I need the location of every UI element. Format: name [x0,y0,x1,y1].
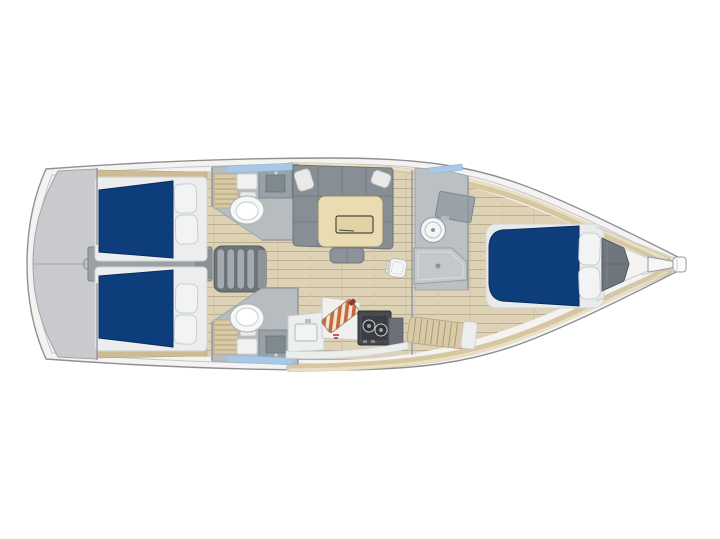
boat-floorplan-figure: Sailboat interior layout plan, top view:… [0,0,720,539]
salon-table [318,196,383,247]
step-tread [227,249,235,289]
pillow [174,315,197,345]
forward-head [414,164,475,290]
aft-cabin-port [95,267,207,358]
sink-cabinet [259,170,292,198]
faucet [275,354,278,357]
aft-cabin-starboard [95,170,207,261]
galley-sink [295,324,317,341]
pillow [174,184,197,214]
step-tread [217,249,225,289]
pillow [578,233,600,266]
pillow [175,284,198,314]
bench-end-panel [460,321,477,350]
v-berth-mattress [489,226,579,306]
forward-cabin [486,224,604,308]
stove [358,311,391,345]
bowsprit-tip [673,257,686,272]
faucet [441,216,449,220]
faucet [275,172,278,175]
double-berth-mattress [99,270,173,347]
stove-knob [371,340,375,343]
yacht-layout-plan: Sailboat interior layout plan, top view:… [0,0,720,539]
vanity-shelf [237,339,257,354]
faucet [305,319,311,323]
double-berth-mattress [99,181,173,258]
sink-basin [266,336,285,353]
shower-drain [436,264,441,269]
pillow [578,267,600,300]
vanity-shelf [237,174,257,189]
pillow [175,215,198,245]
step-tread [247,249,255,289]
companionway-steps [214,246,266,292]
stove-knob [363,340,367,343]
step-tread [237,249,245,289]
sink-basin [266,175,285,192]
